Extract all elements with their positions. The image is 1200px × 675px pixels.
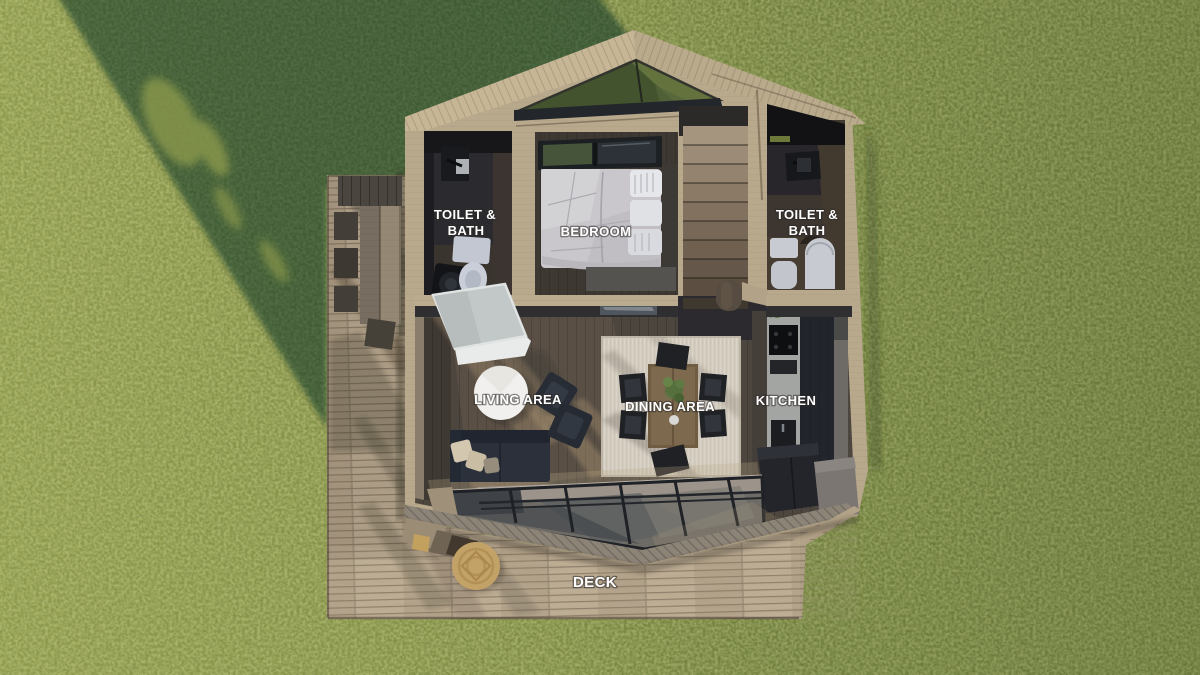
svg-text:KITCHEN: KITCHEN	[756, 393, 817, 408]
svg-text:BATH: BATH	[789, 223, 826, 238]
svg-text:DINING AREA: DINING AREA	[625, 399, 715, 414]
svg-text:TOILET &: TOILET &	[776, 207, 838, 222]
svg-text:DECK: DECK	[573, 574, 617, 591]
svg-text:BEDROOM: BEDROOM	[561, 224, 632, 239]
svg-text:TOILET &: TOILET &	[434, 207, 496, 222]
svg-text:LIVING AREA: LIVING AREA	[474, 392, 562, 407]
svg-text:BATH: BATH	[448, 223, 485, 238]
